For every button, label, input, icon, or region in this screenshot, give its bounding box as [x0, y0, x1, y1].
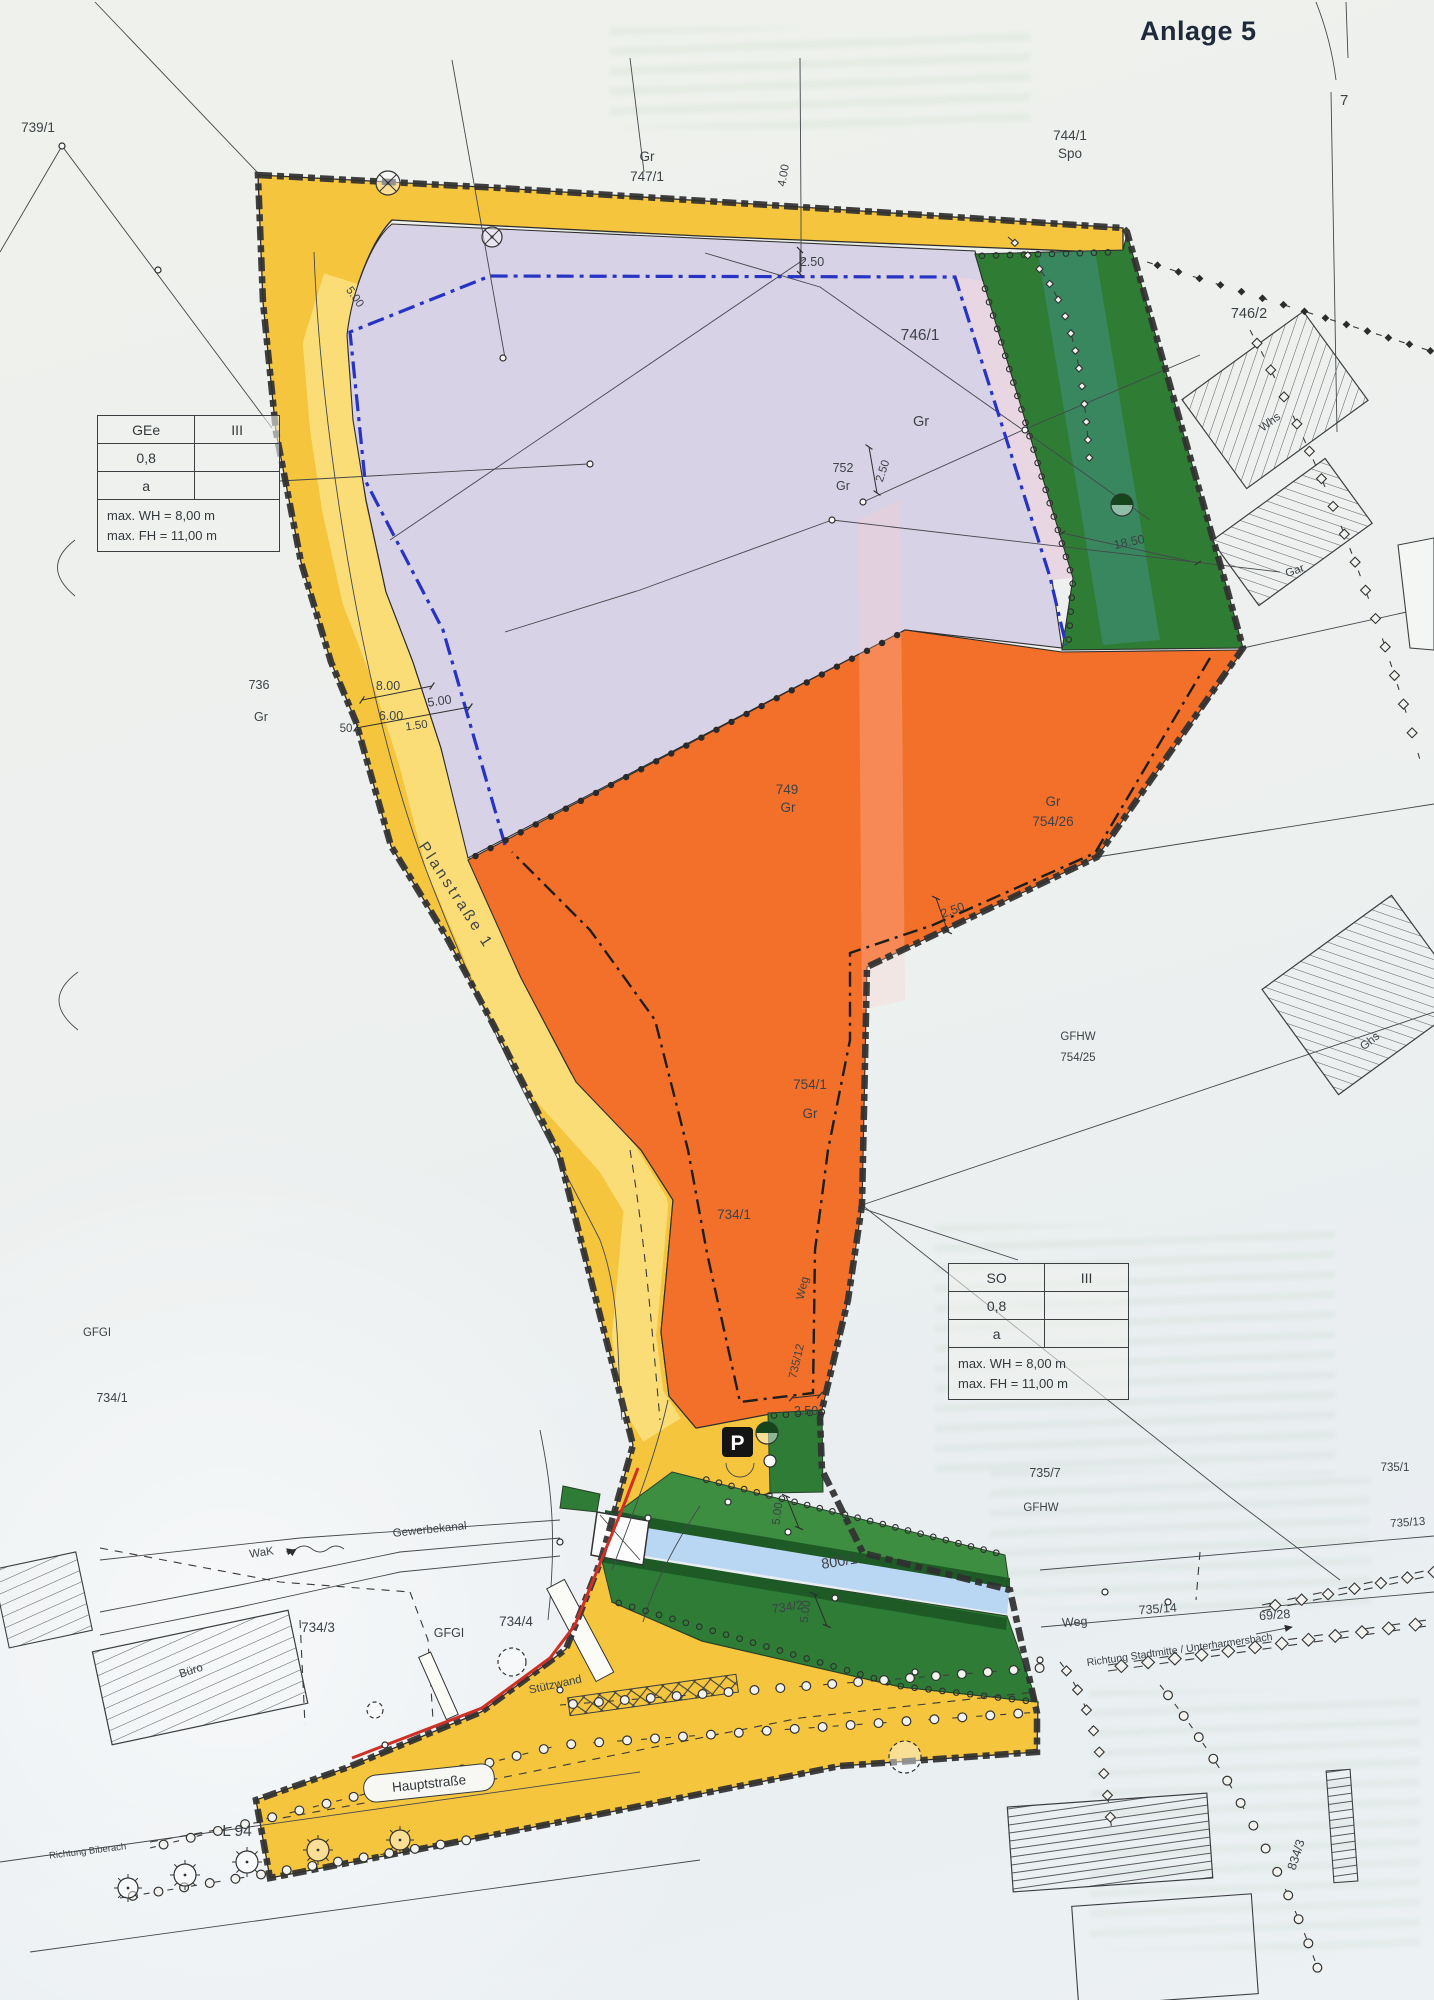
parcel-label-754-26: 754/26	[1032, 814, 1073, 829]
parcel-use-749: Gr	[781, 800, 797, 815]
so-bauweise: a	[949, 1320, 1045, 1347]
sheet-number: 7	[1340, 92, 1348, 109]
parcel-label-834-3: 834/3	[1285, 1838, 1308, 1872]
street-label-l94: L 94	[222, 1823, 252, 1840]
so-max-fh: max. FH = 11,00 m	[958, 1374, 1119, 1394]
gee-ratio: 0,8	[98, 444, 195, 471]
parcel-label-735-7: 735/7	[1029, 1466, 1060, 1480]
building-strip-east	[1326, 1769, 1358, 1882]
parcel-label-734-4: 734/4	[499, 1614, 533, 1629]
building-ghs	[1262, 895, 1434, 1094]
plan-drawing: P 739/1 744/1 Spo Gr 747/1 746/2 746/1 G…	[0, 0, 1434, 2000]
crescent-mark	[58, 540, 76, 596]
parcel-label-734-1-west: 734/1	[96, 1391, 127, 1405]
green-west-of-bridge	[560, 1486, 600, 1512]
building-edge-east	[1398, 538, 1434, 650]
flow-arrow	[296, 1546, 344, 1552]
parcel-label-746-2: 746/2	[1231, 306, 1267, 322]
so-ratio: 0,8	[949, 1292, 1045, 1319]
parcel-label-744-1: 744/1	[1053, 128, 1087, 143]
parcel-use-754-25: GFHW	[1060, 1031, 1095, 1043]
parcel-label-749: 749	[776, 782, 799, 797]
parcel-label-735-14: 735/14	[1138, 1601, 1177, 1618]
dim-50: 50	[340, 723, 353, 735]
parcel-label-736: 736	[249, 678, 270, 692]
parcel-use-746-1: Gr	[913, 414, 929, 430]
dim-600: 6.00	[379, 709, 403, 723]
dim-250-path: 2.50	[794, 1404, 818, 1418]
parcel-use-754-1: Gr	[803, 1106, 819, 1121]
street-label-richtung-biberach: Richtung Biberach	[48, 1841, 126, 1861]
parcel-use-736: Gr	[254, 710, 268, 724]
parcel-use-744-1: Spo	[1058, 146, 1082, 161]
building-south	[1007, 1793, 1212, 1892]
parcel-label-735-13: 735/13	[1390, 1516, 1426, 1530]
parcel-use-754-26: Gr	[1046, 794, 1062, 809]
tree-icon	[889, 1741, 921, 1773]
parcel-label-747-1: 747/1	[630, 169, 664, 184]
gee-max-wh: max. WH = 8,00 m	[107, 506, 270, 526]
label-gfgi-south: GFGI	[434, 1626, 465, 1640]
parcel-label-735-1: 735/1	[1381, 1462, 1410, 1474]
building-whs	[1182, 311, 1368, 488]
wall-rect	[419, 1652, 459, 1719]
legend-table-so: SO III 0,8 a max. WH = 8,00 m max. FH = …	[948, 1263, 1129, 1400]
so-floors: III	[1045, 1264, 1128, 1291]
building-gar	[1212, 458, 1372, 605]
parcel-label-69-28: 69/28	[1259, 1607, 1291, 1623]
building-west-small	[0, 1552, 92, 1648]
parcel-label-734-1: 734/1	[717, 1207, 751, 1222]
dim-250-top: 2.50	[800, 255, 824, 269]
building-south-2	[1072, 1894, 1259, 2000]
tree-icon	[498, 1648, 526, 1676]
so-max-wh: max. WH = 8,00 m	[958, 1354, 1119, 1374]
parcel-label-739-1: 739/1	[21, 120, 55, 135]
parcel-label-754-1: 754/1	[793, 1077, 827, 1092]
scanned-zoning-plan: P 739/1 744/1 Spo Gr 747/1 746/2 746/1 G…	[0, 0, 1434, 2000]
parcel-use-735-7: GFHW	[1023, 1502, 1058, 1514]
parcel-label-754-25: 754/25	[1060, 1052, 1095, 1064]
label-wak: WaK	[249, 1545, 275, 1560]
so-zone: SO	[949, 1264, 1045, 1291]
parcel-label-734-3: 734/3	[301, 1620, 335, 1635]
legend-table-gee: GEe III 0,8 a max. WH = 8,00 m max. FH =…	[97, 415, 280, 552]
street-label-richtung-stadtmitte: Richtung Stadtmitte / Unterharmersbach	[1086, 1631, 1273, 1669]
parcel-label-752: 752	[833, 461, 854, 475]
parcel-label-746-1: 746/1	[901, 327, 940, 344]
parcel-use-747-1: Gr	[640, 149, 656, 164]
dim-800: 8.00	[376, 679, 400, 693]
parcel-use-752: Gr	[836, 479, 850, 493]
scan-streak-orange	[858, 500, 905, 1010]
label-gewerbekanal: Gewerbekanal	[392, 1520, 467, 1540]
label-gfgi-west: GFGI	[83, 1327, 111, 1339]
crescent-mark	[59, 972, 78, 1030]
dim-400: 4.00	[776, 163, 792, 187]
gee-max-fh: max. FH = 11,00 m	[107, 526, 270, 546]
street-label-weg-east: Weg	[1062, 1614, 1088, 1630]
gee-zone: GEe	[98, 416, 195, 443]
green-parking-plot	[768, 1410, 823, 1493]
gee-bauweise: a	[98, 472, 195, 499]
tree-icon	[367, 1702, 383, 1718]
svg-text:P: P	[730, 1432, 744, 1455]
page-title: Anlage 5	[1140, 16, 1257, 47]
gee-floors: III	[195, 416, 279, 443]
